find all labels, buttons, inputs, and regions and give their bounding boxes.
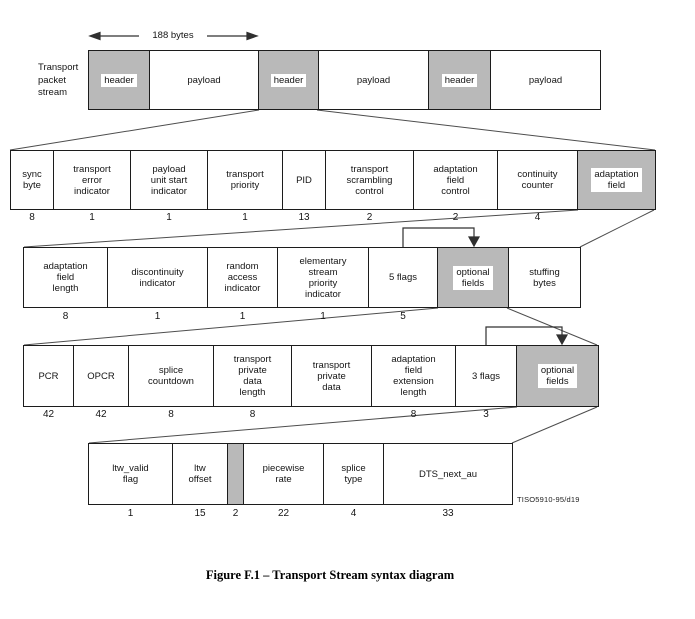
- bits-adaptation-field: 8 1 1 1 5: [0, 311, 695, 323]
- figure-caption: Figure F.1 – Transport Stream syntax dia…: [0, 568, 660, 583]
- arrowhead-down-icon: [469, 237, 479, 246]
- bits-ts-header: 8 1 1 1 13 2 2 4: [0, 212, 695, 224]
- cell-piecewise-rate: piecewise rate: [243, 443, 324, 505]
- cell-payload-unit-start-indicator: payload unit start indicator: [130, 150, 208, 210]
- arrowhead-right-icon: [247, 33, 257, 40]
- bits-ltw-valid-flag: 1: [88, 508, 173, 519]
- bits-adaptation-field-control: 2: [413, 212, 498, 223]
- bits-dts-next-au: 33: [383, 508, 513, 519]
- cell-transport-scrambling-control: transport scrambling control: [325, 150, 414, 210]
- bits-splice-type: 4: [323, 508, 384, 519]
- arrowhead-left-icon: [90, 33, 100, 40]
- transport-stream-syntax-diagram: 188 bytes Transport packet stream header…: [0, 0, 695, 619]
- bits-splice-countdown: 8: [128, 409, 214, 420]
- cell-header-3: header: [428, 50, 491, 110]
- cell-elementary-stream-priority-indicator: elementary stream priority indicator: [277, 247, 369, 308]
- cell-random-access-indicator: random access indicator: [207, 247, 278, 308]
- expand-header-left-line: [10, 110, 259, 150]
- bits-reserved: 2: [227, 508, 244, 519]
- row-ts-header: sync byte transport error indicator payl…: [0, 150, 695, 210]
- cell-optional-fields: optional fields: [437, 247, 509, 308]
- bits-payload-unit-start-indicator: 1: [130, 212, 208, 223]
- bits-af-optional: 42 42 8 8 8 3: [0, 409, 695, 421]
- cell-ltw-offset: ltw offset: [172, 443, 228, 505]
- bits-pcr: 42: [23, 409, 74, 420]
- cell-opcr: OPCR: [73, 345, 129, 407]
- cell-header-1: header: [88, 50, 150, 110]
- bits-discontinuity-indicator: 1: [107, 311, 208, 322]
- bits-pid: 13: [282, 212, 326, 223]
- bits-random-access-indicator: 1: [207, 311, 278, 322]
- row-adaptation-field: adaptation field length discontinuity in…: [0, 247, 695, 308]
- bits-transport-private-data-length: 8: [213, 409, 292, 420]
- cell-discontinuity-indicator: discontinuity indicator: [107, 247, 208, 308]
- bits-transport-scrambling-control: 2: [325, 212, 414, 223]
- cell-adaptation-field-extension-length: adaptation field extension length: [371, 345, 456, 407]
- cell-transport-error-indicator: transport error indicator: [53, 150, 131, 210]
- cell-continuity-counter: continuity counter: [497, 150, 578, 210]
- cell-stuffing-bytes: stuffing bytes: [508, 247, 581, 308]
- bits-sync-byte: 8: [10, 212, 54, 223]
- cell-optional-fields-2: optional fields: [516, 345, 599, 407]
- drawing-reference: TISO5910-95/d19: [517, 495, 580, 504]
- cell-ltw-valid-flag: ltw_valid flag: [88, 443, 173, 505]
- row-af-extension-optional: ltw_valid flag ltw offset piecewise rate…: [0, 443, 695, 505]
- cell-splice-type: splice type: [323, 443, 384, 505]
- cell-pcr: PCR: [23, 345, 74, 407]
- bits-transport-priority: 1: [207, 212, 283, 223]
- cell-reserved: [227, 443, 244, 505]
- cell-adaptation-field-length: adaptation field length: [23, 247, 108, 308]
- row-packet-stream: header payload header payload header pay…: [0, 50, 695, 110]
- cell-payload-3: payload: [490, 50, 601, 110]
- bits-adaptation-field-extension-length: 8: [371, 409, 456, 420]
- cell-transport-priority: transport priority: [207, 150, 283, 210]
- bits-elementary-stream-priority-indicator: 1: [277, 311, 369, 322]
- cell-pid: PID: [282, 150, 326, 210]
- expand-header-right-line: [317, 110, 655, 150]
- arrowhead-down-icon: [557, 335, 567, 344]
- cell-adaptation-field-control: adaptation field control: [413, 150, 498, 210]
- cell-payload-2: payload: [318, 50, 429, 110]
- bits-5-flags: 5: [368, 311, 438, 322]
- cell-5-flags: 5 flags: [368, 247, 438, 308]
- row-af-optional: PCR OPCR splice countdown transport priv…: [0, 345, 695, 407]
- bits-af-extension-optional: 1 15 2 22 4 33: [0, 508, 695, 520]
- bits-adaptation-field-length: 8: [23, 311, 108, 322]
- cell-3-flags: 3 flags: [455, 345, 517, 407]
- bits-3-flags: 3: [455, 409, 517, 420]
- bits-piecewise-rate: 22: [243, 508, 324, 519]
- cell-splice-countdown: splice countdown: [128, 345, 214, 407]
- cell-sync-byte: sync byte: [10, 150, 54, 210]
- cell-adaptation-field: adaptation field: [577, 150, 656, 210]
- bits-continuity-counter: 4: [497, 212, 578, 223]
- cell-transport-private-data-length: transport private data length: [213, 345, 292, 407]
- bits-ltw-offset: 15: [172, 508, 228, 519]
- cell-transport-private-data: transport private data: [291, 345, 372, 407]
- cell-dts-next-au: DTS_next_au: [383, 443, 513, 505]
- bits-opcr: 42: [73, 409, 129, 420]
- bytes-arrow-label: 188 bytes: [139, 29, 207, 42]
- bits-transport-error-indicator: 1: [53, 212, 131, 223]
- cell-header-2: header: [258, 50, 319, 110]
- cell-payload-1: payload: [149, 50, 259, 110]
